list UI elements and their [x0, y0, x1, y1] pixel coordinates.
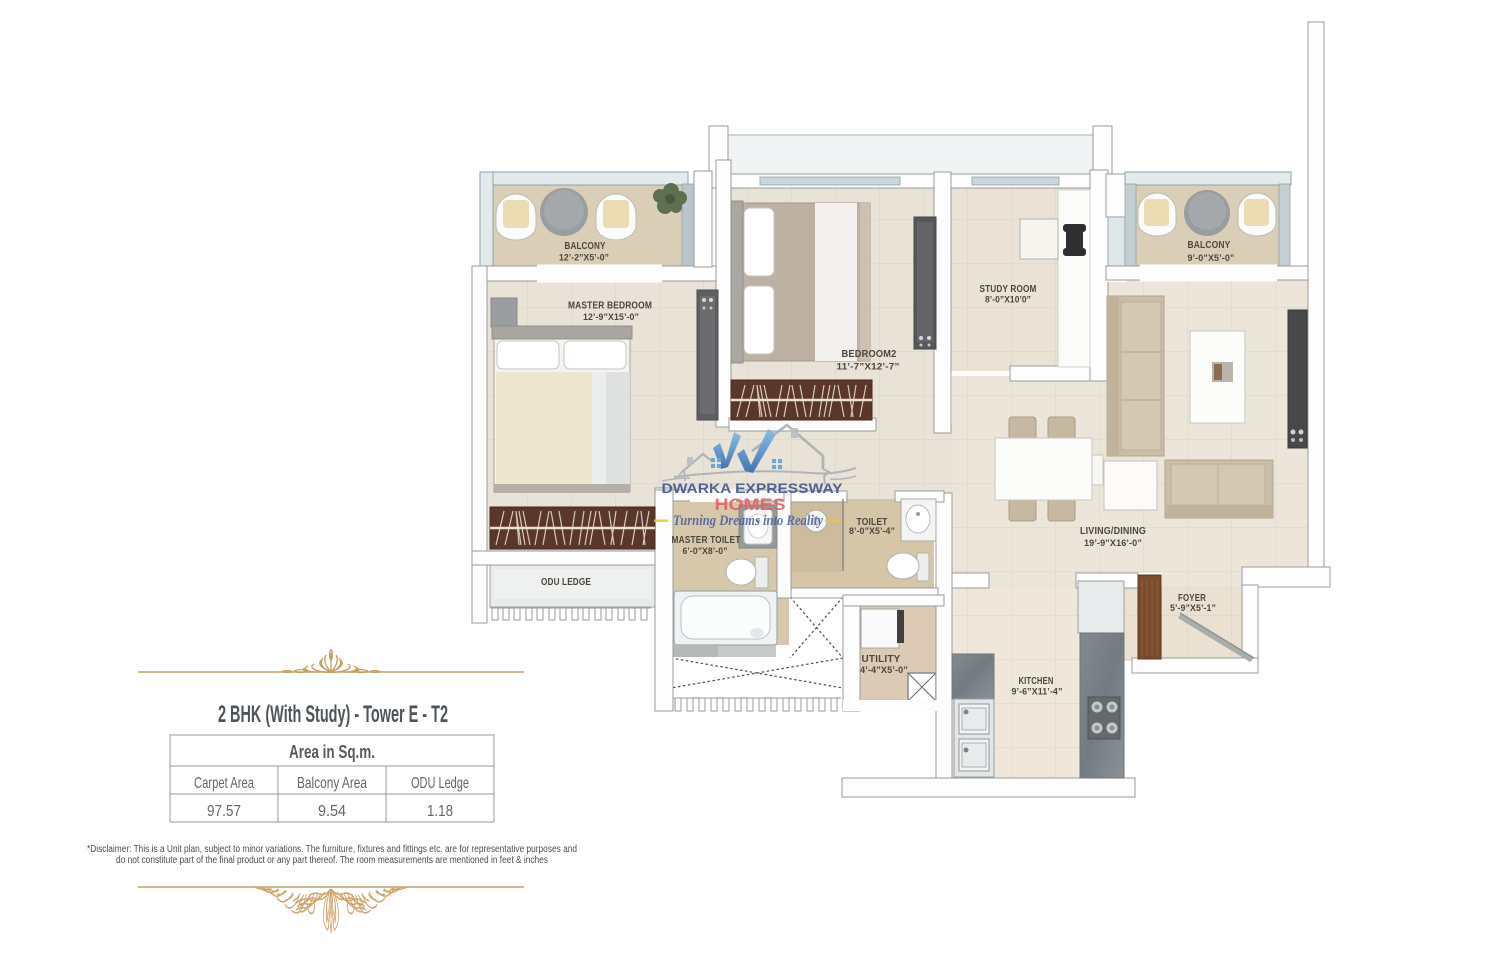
svg-text:9’-6”X11’-4”: 9’-6”X11’-4”	[1012, 687, 1063, 697]
svg-text:9’-0”X5’-0”: 9’-0”X5’-0”	[1188, 253, 1235, 263]
svg-text:Area in Sq.m.: Area in Sq.m.	[289, 742, 375, 762]
svg-text:1.18: 1.18	[427, 803, 453, 820]
svg-text:11’-7”X12’-7”: 11’-7”X12’-7”	[837, 362, 900, 372]
svg-text:9.54: 9.54	[318, 803, 346, 820]
svg-text:Turning Dreams into Reality: Turning Dreams into Reality	[673, 513, 823, 529]
svg-text:LIVING/DINING: LIVING/DINING	[1080, 525, 1146, 537]
svg-text:DWARKA EXPRESSWAY: DWARKA EXPRESSWAY	[662, 481, 843, 496]
svg-text:HOMES: HOMES	[715, 495, 786, 514]
svg-text:5’-9”X5’-1”: 5’-9”X5’-1”	[1170, 603, 1216, 613]
svg-text:*Disclaimer: This is a Unit pl: *Disclaimer: This is a Unit plan, subjec…	[87, 844, 577, 855]
svg-text:97.57: 97.57	[207, 803, 241, 820]
svg-text:6’-0”X8’-0”: 6’-0”X8’-0”	[683, 546, 728, 556]
svg-text:ODU LEDGE: ODU LEDGE	[541, 576, 591, 588]
svg-text:ODU Ledge: ODU Ledge	[411, 775, 469, 792]
svg-text:8’-0”X5’-4”: 8’-0”X5’-4”	[849, 526, 895, 536]
svg-text:BEDROOM2: BEDROOM2	[842, 348, 897, 360]
svg-text:MASTER TOILET: MASTER TOILET	[672, 534, 741, 546]
svg-text:2 BHK (With Study) - Tower E -: 2 BHK (With Study) - Tower E - T2	[218, 701, 448, 728]
svg-text:BALCONY: BALCONY	[1188, 239, 1231, 251]
svg-text:UTILITY: UTILITY	[862, 653, 901, 665]
svg-text:Carpet Area: Carpet Area	[194, 775, 254, 792]
svg-text:STUDY ROOM: STUDY ROOM	[980, 283, 1037, 295]
svg-text:KITCHEN: KITCHEN	[1019, 675, 1054, 687]
svg-text:8’-0”X10’0”: 8’-0”X10’0”	[985, 295, 1031, 305]
svg-text:Balcony Area: Balcony Area	[297, 775, 367, 792]
svg-text:BALCONY: BALCONY	[565, 240, 606, 252]
svg-text:MASTER BEDROOM: MASTER BEDROOM	[568, 300, 652, 312]
svg-text:19’-9”X16’-0”: 19’-9”X16’-0”	[1084, 538, 1142, 548]
svg-text:12’-2”X5’-0”: 12’-2”X5’-0”	[559, 253, 609, 263]
svg-text:12’-9”X15’-0”: 12’-9”X15’-0”	[583, 312, 639, 322]
svg-text:4’-4”X5’-0”: 4’-4”X5’-0”	[860, 665, 908, 675]
svg-text:do not constitute part of the: do not constitute part of the final prod…	[116, 855, 548, 866]
